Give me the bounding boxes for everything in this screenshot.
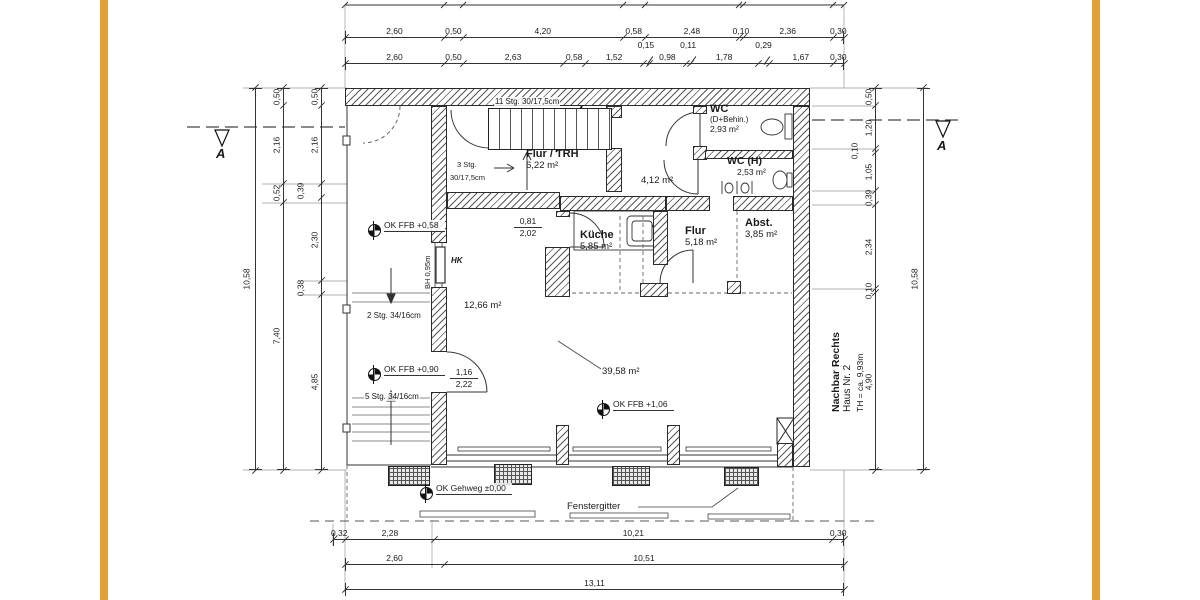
dim-segment: 1,05 xyxy=(850,153,876,191)
window-pier-2 xyxy=(667,425,680,465)
dim-segment: 4,20 xyxy=(463,12,623,38)
dim-segment: 0,32 xyxy=(333,514,345,540)
dim-segment: 1,52 xyxy=(585,38,643,64)
free-column xyxy=(727,281,741,294)
window-grille-4 xyxy=(724,467,759,486)
dim-chain-top2: 2,600,502,630,581,520,150,980,111,780,29… xyxy=(345,38,844,64)
dim-label: 2,63 xyxy=(505,52,522,62)
dim-segment: 0,39 xyxy=(850,191,876,205)
room-subname: (D+Behin.) xyxy=(710,115,748,124)
stair-note-3stg-1: 3 Stg. xyxy=(456,160,478,169)
dim-chain-bottom2: 2,6010,51 xyxy=(345,539,844,565)
dim-label: 0,58 xyxy=(625,26,642,36)
wall-wc-west-stub-top xyxy=(693,106,707,114)
dim-label: 2,60 xyxy=(386,26,403,36)
dim-chain-left_mid: 0,502,160,527,40 xyxy=(258,88,284,470)
room-area: 12,66 m² xyxy=(464,300,502,311)
window-grille-3 xyxy=(612,466,650,486)
room-label-flur-trh: Flur / TRH 6,22 m² xyxy=(526,148,579,171)
neighbor-line: Nachbar Rechts xyxy=(830,332,842,412)
pier-kitchen-west xyxy=(545,247,570,297)
section-marker-right-icon xyxy=(936,121,950,137)
dim-segment: 0,58 xyxy=(563,38,585,64)
window-grille-2 xyxy=(494,464,532,485)
dim-segment: 0,50 xyxy=(444,38,463,64)
stair-note-5stg: 5 Stg. 34/16cm xyxy=(364,392,420,401)
room-area: 3,85 m² xyxy=(745,229,777,240)
dim-segment: 0,38 xyxy=(296,281,322,295)
dim-label: 13,11 xyxy=(584,578,605,588)
room-name: Küche xyxy=(580,229,614,241)
door-height: 2,22 xyxy=(450,379,478,390)
level-text: OK FFB +1,06 xyxy=(613,399,674,411)
dim-chain-left_outer: 10,58 xyxy=(230,88,256,470)
dim-segment: 0,29 xyxy=(758,38,769,64)
section-marker-left-icon xyxy=(215,130,229,146)
dim-label: 1,78 xyxy=(716,52,733,62)
dim-segment: 0,50 xyxy=(296,88,322,106)
dim-label: 0,50 xyxy=(445,26,462,36)
level-symbol-icon xyxy=(368,368,381,381)
dim-segment: 2,60 xyxy=(345,12,444,38)
section-letter-left: A xyxy=(216,146,225,161)
fenstergitter-label: Fenstergitter xyxy=(566,501,621,512)
dim-segment: 2,34 xyxy=(850,205,876,289)
wall-kitchen-north xyxy=(560,196,666,211)
section-letter-right: A xyxy=(937,138,946,153)
dim-segment: 0,30 xyxy=(832,514,844,540)
room-label-flur: Flur 5,18 m² xyxy=(685,225,717,248)
dim-label: 1,20 xyxy=(864,119,874,136)
dim-label: 10,51 xyxy=(633,553,654,563)
wall-stair-east xyxy=(606,148,622,192)
dim-label: 2,16 xyxy=(310,137,320,154)
dim-segment: 0,52 xyxy=(258,184,284,203)
dim-label: 0,50 xyxy=(310,89,320,106)
dim-label: 4,90 xyxy=(864,373,874,390)
dim-label: 0,98 xyxy=(659,52,676,62)
level-symbol-icon xyxy=(368,224,381,237)
room-area: 5,18 m² xyxy=(685,237,717,248)
stair-direction-arrows xyxy=(387,268,395,445)
dim-segment: 0,30 xyxy=(833,38,844,64)
dim-segment: 2,60 xyxy=(345,539,444,565)
dim-label: 2,60 xyxy=(386,52,403,62)
dim-segment: 2,28 xyxy=(345,514,434,540)
dim-chain-top1: 2,600,504,200,582,480,102,360,30 xyxy=(345,12,844,38)
dim-segment: 0,58 xyxy=(623,12,645,38)
stair-note-main: 11 Stg. 30/17,5cm xyxy=(494,97,560,106)
dim-segment: 1,67 xyxy=(769,38,833,64)
parapet-height-label: BH 0,95m xyxy=(423,256,432,289)
dim-segment: 4,90 xyxy=(850,293,876,470)
door-dim-entry: 1,16 2,22 xyxy=(450,367,478,390)
room-area: 4,12 m² xyxy=(641,175,673,186)
dim-segment: 0,50 xyxy=(258,88,284,106)
stair-note-3stg-2: 30/17,5cm xyxy=(449,173,486,182)
door-height: 2,02 xyxy=(514,228,542,239)
dim-segment: 10,58 xyxy=(230,88,256,470)
dim-label: 0,30 xyxy=(830,26,847,36)
dim-segment: 2,16 xyxy=(296,106,322,184)
corner-pier-right xyxy=(777,443,793,467)
dim-segment: 2,60 xyxy=(345,38,444,64)
dim-segment: 0,50 xyxy=(444,12,463,38)
dim-label: 2,36 xyxy=(779,26,796,36)
dim-label: 10,21 xyxy=(623,528,644,538)
wall-left-lower xyxy=(431,392,447,465)
dim-segment: 10,58 xyxy=(898,88,924,470)
wall-kitchen-west-stub xyxy=(556,211,570,217)
cut-top-dimension-line xyxy=(342,2,847,8)
dim-label: 0,39 xyxy=(864,190,874,207)
dim-label: 0,38 xyxy=(296,280,306,297)
dim-segment: 1,78 xyxy=(690,38,758,64)
dim-label: 0,58 xyxy=(566,52,583,62)
staircase xyxy=(488,108,612,150)
dim-chain-bottom3: 13,11 xyxy=(345,564,844,590)
dim-segment: 2,30 xyxy=(296,198,322,281)
dim-segment: 4,85 xyxy=(296,295,322,470)
dim-segment: 0,30 xyxy=(833,12,844,38)
forecourt-boundary xyxy=(343,88,431,465)
dim-label: 10,58 xyxy=(909,268,919,289)
pier-kitchen-southeast xyxy=(640,283,668,297)
room-label-abst: Abst. 3,85 m² xyxy=(745,217,777,240)
dim-segment: 10,21 xyxy=(434,514,832,540)
level-text: OK FFB +0,58 xyxy=(384,220,445,232)
level-text: OK Gehweg ±0,00 xyxy=(436,483,512,495)
level-symbol-icon xyxy=(597,403,610,416)
dim-label: 0,39 xyxy=(296,183,306,200)
dim-chain-right_outer: 10,58 xyxy=(898,88,924,470)
corner-column xyxy=(777,418,794,444)
dim-label: 2,60 xyxy=(386,553,403,563)
door-width: 1,16 xyxy=(450,367,478,379)
dim-segment: 13,11 xyxy=(345,564,844,590)
window-grille-1 xyxy=(388,466,430,486)
room-name: WC (H) xyxy=(727,155,766,167)
room-name: Abst. xyxy=(745,217,777,229)
dim-label: 4,85 xyxy=(310,374,320,391)
wall-right xyxy=(793,106,810,467)
dim-segment: 2,63 xyxy=(463,38,563,64)
dim-segment: 2,36 xyxy=(743,12,833,38)
dim-label: 2,48 xyxy=(684,26,701,36)
level-text: OK FFB +0,90 xyxy=(384,364,445,376)
room-area: 39,58 m² xyxy=(602,366,640,377)
facade-windows xyxy=(431,447,793,467)
room-label-kueche: Küche 5,85 m² xyxy=(580,229,614,252)
room-label-room-left: 12,66 m² xyxy=(464,300,502,311)
room-name: WC xyxy=(710,103,748,115)
door-dim-kitchen: 0,81 2,02 xyxy=(514,216,542,239)
scanned-floorplan-page: Flur / TRH 6,22 m² WC (D+Behin.) 2,93 m²… xyxy=(0,0,1200,600)
wall-left-middle xyxy=(431,287,447,352)
door-width: 0,81 xyxy=(514,216,542,228)
dim-chain-bottom1: 0,322,2810,210,30 xyxy=(333,514,844,540)
room-area: 2,53 m² xyxy=(737,167,766,177)
level-symbol-icon xyxy=(420,487,433,500)
wall-stair-south xyxy=(447,192,560,209)
dim-chain-right_inner: 0,501,200,101,050,392,340,104,90 xyxy=(850,88,876,470)
wall-hall-south-right xyxy=(733,196,793,211)
dim-label: 1,05 xyxy=(864,164,874,181)
room-area: 6,22 m² xyxy=(526,160,579,171)
stair-note-2stg: 2 Stg. 34/16cm xyxy=(366,311,422,320)
room-label-wc-h: WC (H) 2,53 m² xyxy=(727,155,766,177)
dim-label: 10,58 xyxy=(241,268,251,289)
dim-label: 0,50 xyxy=(864,89,874,106)
window-pier-1 xyxy=(556,425,569,465)
dim-label: 2,34 xyxy=(864,239,874,256)
radiator-label: HK xyxy=(450,256,464,265)
room-label-wc-d: WC (D+Behin.) 2,93 m² xyxy=(710,103,748,134)
dim-segment: 0,39 xyxy=(296,184,322,198)
wall-kitchen-east xyxy=(653,211,668,265)
dim-segment: 0,50 xyxy=(850,88,876,106)
dim-label: 2,28 xyxy=(382,528,399,538)
room-area: 2,93 m² xyxy=(710,124,748,134)
room-label-room-main: 39,58 m² xyxy=(602,366,640,377)
dim-label: 0,50 xyxy=(272,89,282,106)
dim-label: 0,50 xyxy=(445,52,462,62)
dim-segment: 10,51 xyxy=(444,539,844,565)
dim-label: 1,52 xyxy=(606,52,623,62)
dim-segment: 7,40 xyxy=(258,203,284,470)
dim-label: 0,30 xyxy=(830,52,847,62)
dim-label: 4,20 xyxy=(534,26,551,36)
floor-plan-canvas: Flur / TRH 6,22 m² WC (D+Behin.) 2,93 m²… xyxy=(0,0,1200,600)
wall-hall-south-left xyxy=(666,196,710,211)
dim-label: 7,40 xyxy=(272,328,282,345)
dim-label: 0,52 xyxy=(272,185,282,202)
dim-segment: 2,48 xyxy=(645,12,739,38)
left-window-radiator xyxy=(435,243,445,287)
dim-label: 2,16 xyxy=(272,137,282,154)
room-name: Flur xyxy=(685,225,717,237)
dim-label: 0,30 xyxy=(830,528,847,538)
dim-label: 2,30 xyxy=(310,231,320,248)
dim-label: 1,67 xyxy=(793,52,810,62)
dim-chain-left_inner: 0,502,160,392,300,384,85 xyxy=(296,88,322,470)
room-area: 5,85 m² xyxy=(580,241,614,252)
room-label-hall: 4,12 m² xyxy=(641,175,673,186)
room-name: Flur / TRH xyxy=(526,148,579,160)
dim-segment: 2,16 xyxy=(258,106,284,184)
